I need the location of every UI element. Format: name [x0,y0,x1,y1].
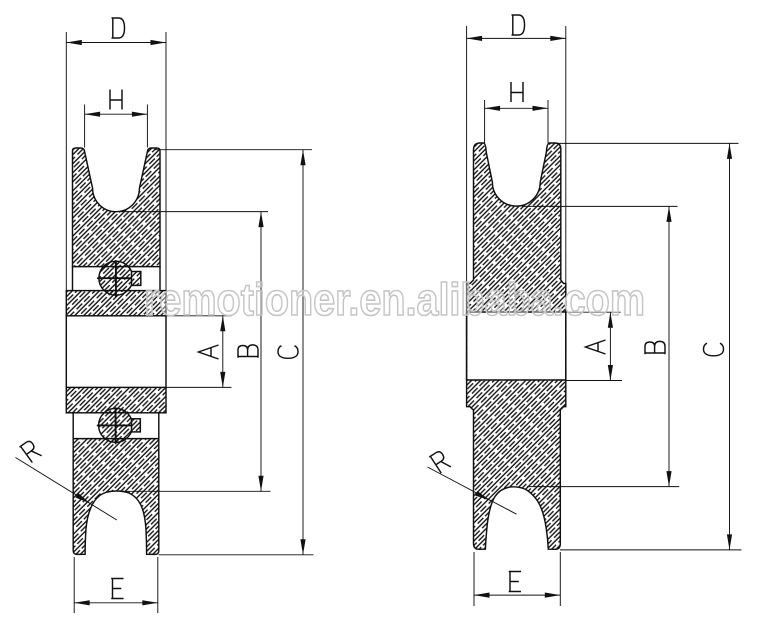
svg-text:remotioner.en.alibaba.com: remotioner.en.alibaba.com [144,274,645,325]
